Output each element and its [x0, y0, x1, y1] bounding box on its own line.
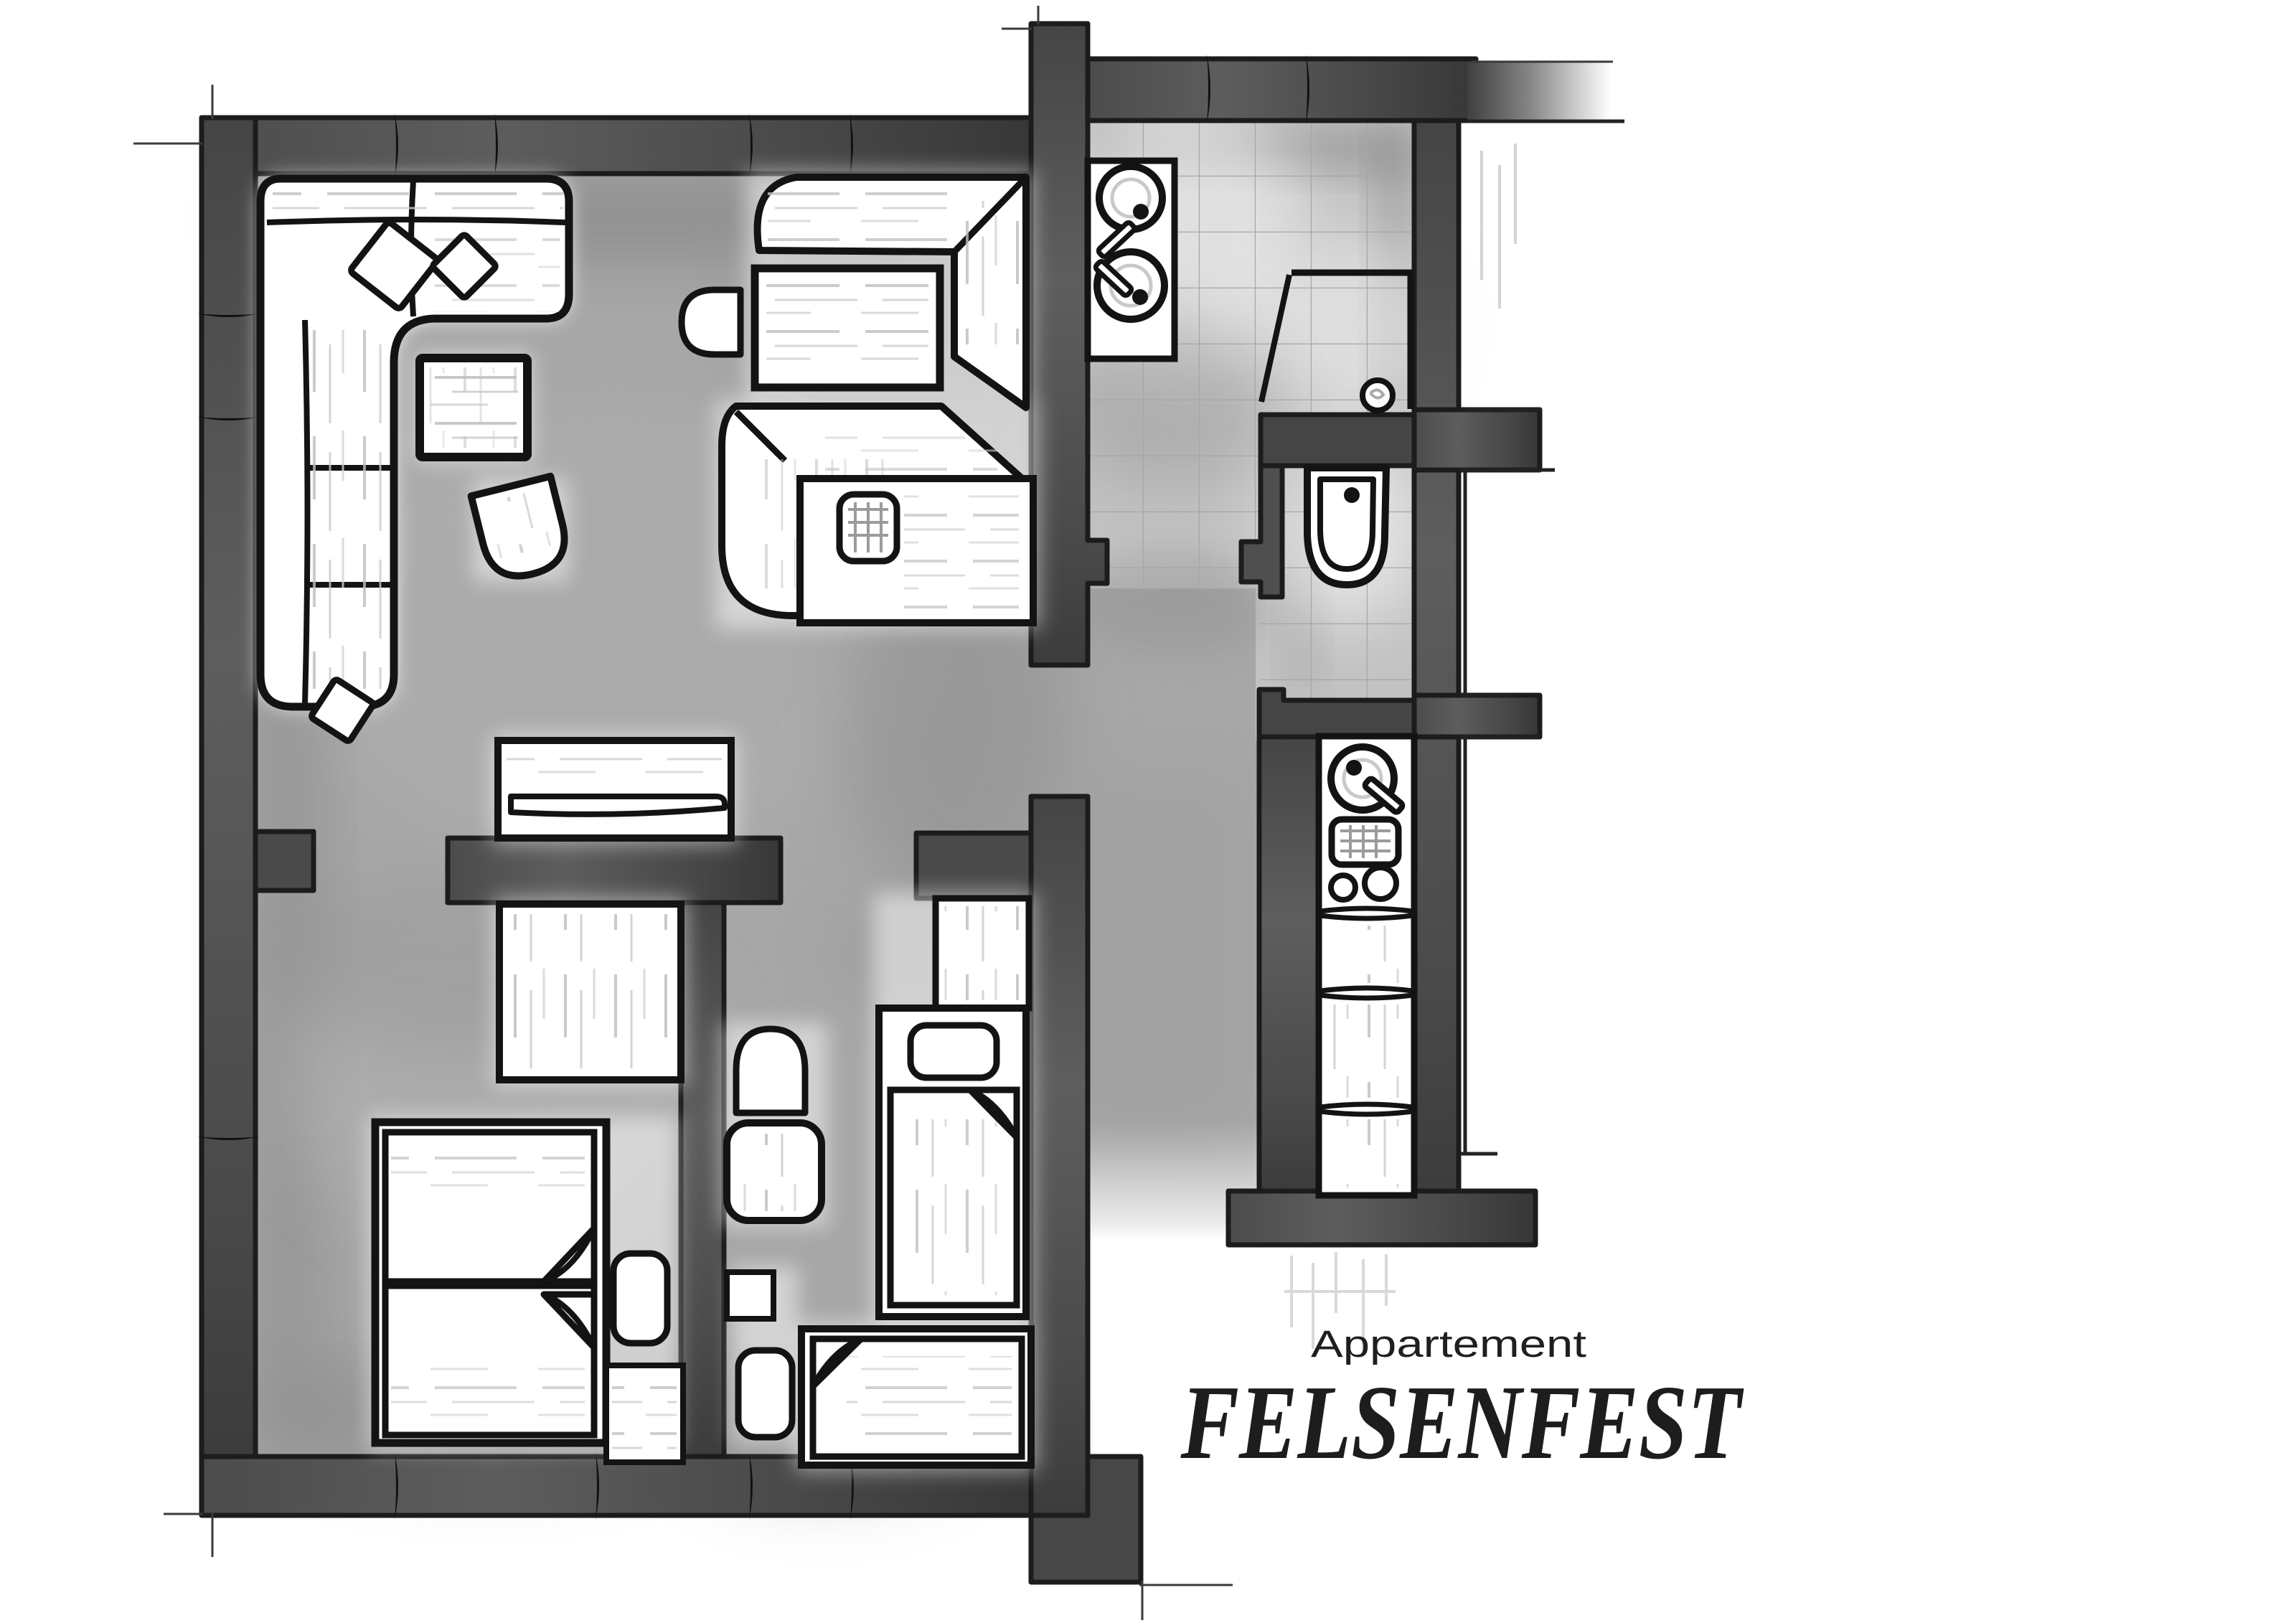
svg-text:Appartement: Appartement	[1311, 1323, 1586, 1365]
svg-text:FELSENFEST: FELSENFEST	[1180, 1364, 1744, 1482]
